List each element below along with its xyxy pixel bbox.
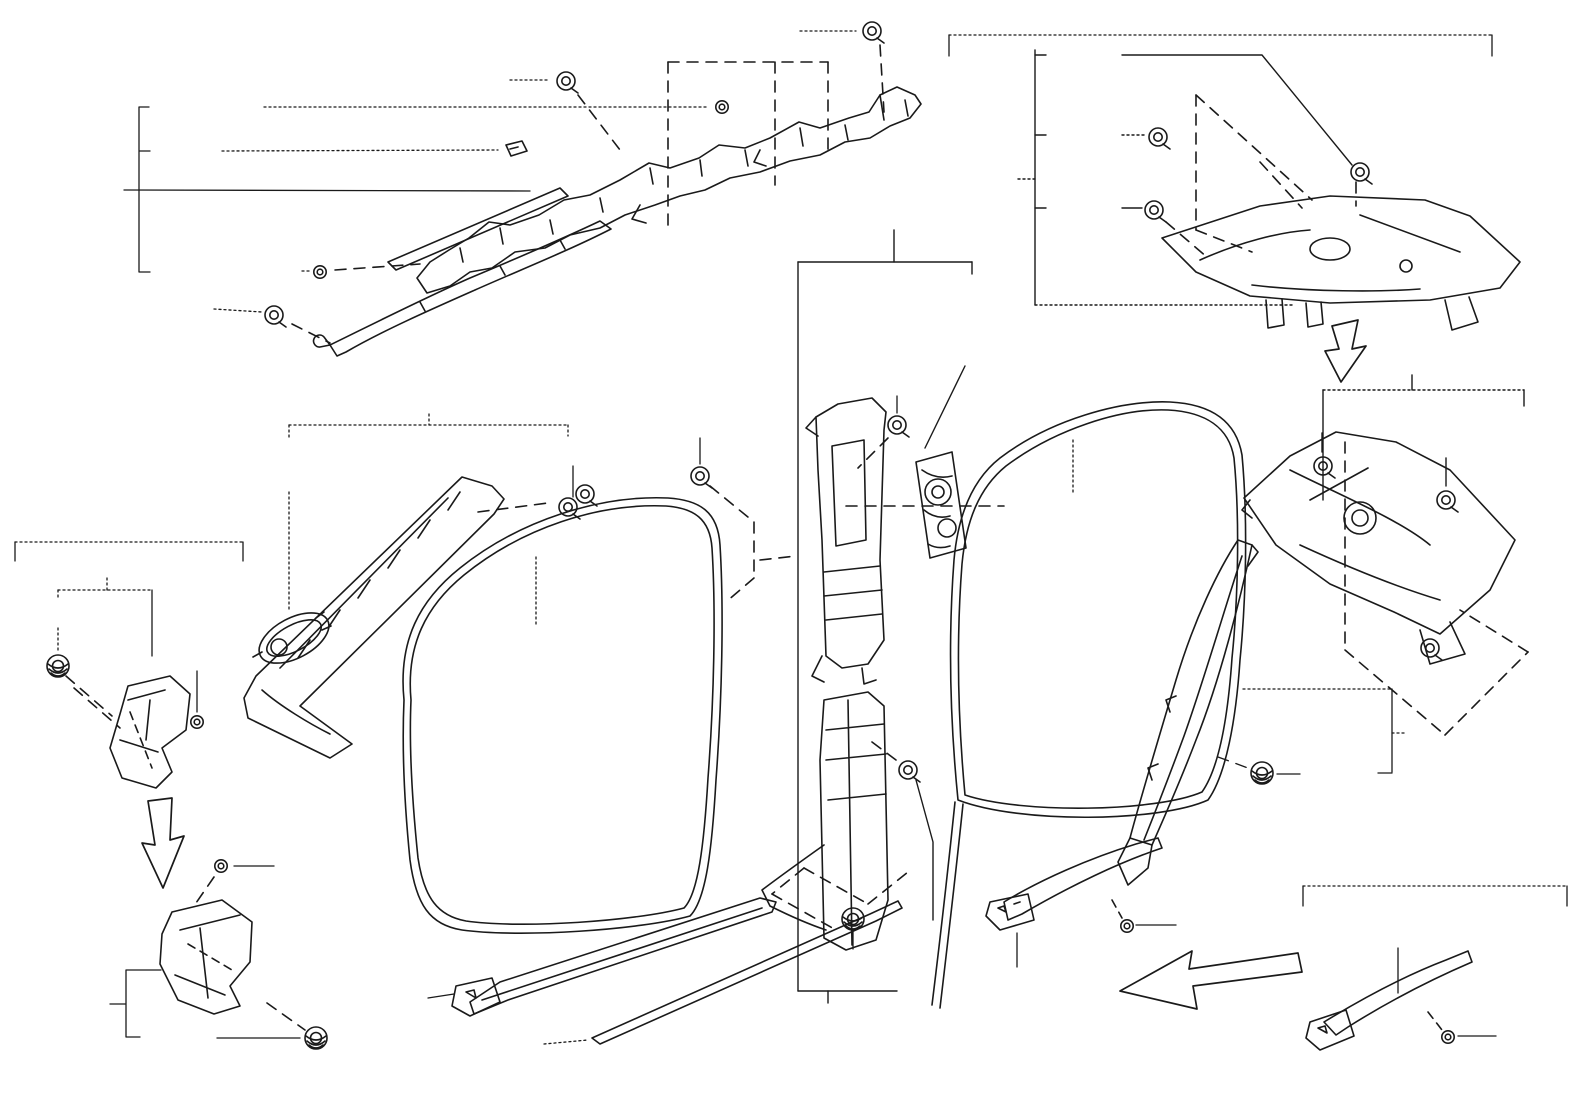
parts-diagram-canvas [0, 0, 1592, 1099]
label-layer [0, 0, 1592, 1099]
